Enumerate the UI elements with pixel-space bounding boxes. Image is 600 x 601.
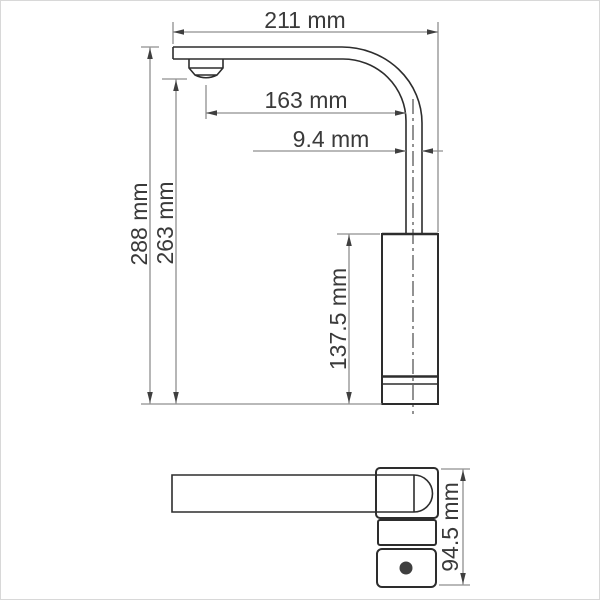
arrowhead-left <box>422 148 433 154</box>
arrowhead-right <box>395 148 406 154</box>
dim-label-total-width: 211 mm <box>264 7 345 33</box>
dim-body-height: 137.5 mm <box>325 234 380 404</box>
arrowhead-right <box>427 29 438 35</box>
dim-label-base-depth: 94.5 mm <box>437 482 463 571</box>
dim-total-width: 211 mm <box>173 7 438 232</box>
aerator <box>189 59 223 78</box>
technical-drawing-canvas: 211 mm 163 mm 9.4 mm 288 mm 263 mm <box>0 0 600 600</box>
base-middle-block <box>378 520 436 545</box>
arrowhead-down <box>460 573 466 584</box>
dim-label-outlet-height: 263 mm <box>152 181 178 264</box>
arrowhead-up <box>173 80 179 91</box>
dim-spout-reach: 163 mm <box>206 85 406 119</box>
arrowhead-up <box>460 470 466 481</box>
dim-outlet-height: 263 mm <box>152 79 187 404</box>
arrowhead-down <box>346 392 352 403</box>
screw-hole-dot <box>400 562 413 575</box>
dim-label-spout-reach: 163 mm <box>264 87 347 113</box>
dim-label-pipe-width: 9.4 mm <box>293 126 370 152</box>
faucet-dimension-drawing: 211 mm 163 mm 9.4 mm 288 mm 263 mm <box>1 1 600 601</box>
dim-label-total-height: 288 mm <box>126 182 152 265</box>
lever-handle <box>172 475 414 512</box>
faucet-body <box>382 234 438 404</box>
top-view <box>172 468 438 587</box>
spout-inner-edge <box>173 59 406 233</box>
arrowhead-up <box>147 48 153 59</box>
lever-pivot-cap <box>414 475 433 512</box>
dim-pipe-width: 9.4 mm <box>253 126 443 154</box>
arrowhead-left <box>173 29 184 35</box>
arrowhead-down <box>147 392 153 403</box>
arrowhead-left <box>206 110 217 116</box>
arrowhead-up <box>346 235 352 246</box>
dim-label-body-height: 137.5 mm <box>325 268 351 370</box>
arrowhead-down <box>173 392 179 403</box>
dim-base-depth: 94.5 mm <box>437 469 470 585</box>
arrowhead-right <box>395 110 406 116</box>
